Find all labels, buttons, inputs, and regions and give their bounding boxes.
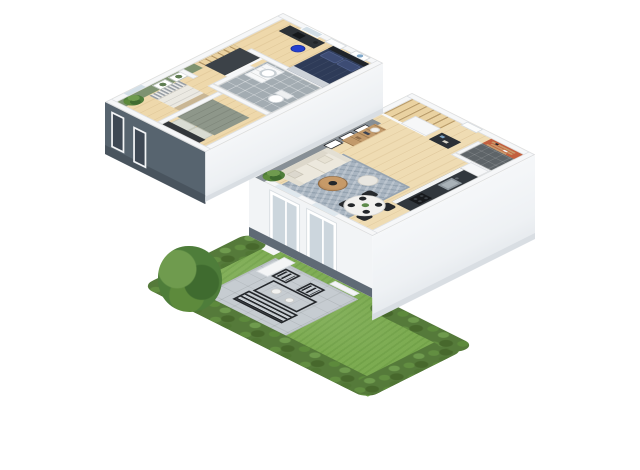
laptop [292, 32, 306, 39]
upper-facade-window-2 [133, 126, 146, 169]
tableware-cup [282, 297, 296, 304]
chair-slats [301, 285, 320, 295]
upper-facade-window-1 [111, 111, 124, 154]
place-setting [346, 203, 357, 208]
cushion-seam [306, 164, 325, 174]
place-setting [361, 209, 372, 214]
place-setting [357, 196, 368, 201]
chair-slats [276, 271, 295, 281]
floor-plan-scene [0, 0, 640, 470]
table-lamp [368, 126, 382, 133]
tableware-plate [268, 287, 284, 295]
window-mullion [285, 201, 287, 247]
burner [417, 200, 422, 203]
place-setting [373, 202, 384, 207]
console-shelf [429, 133, 462, 149]
burner [423, 197, 428, 200]
deco-box [355, 136, 362, 140]
console-deco-2 [442, 140, 449, 144]
desk-lamp [312, 41, 319, 45]
garden-tree [158, 246, 222, 312]
console-deco-1 [439, 135, 445, 138]
centerpiece [360, 203, 371, 208]
coffee-table-tray [327, 180, 339, 186]
window-mullion [322, 219, 324, 265]
blue-stool [287, 43, 308, 54]
books [363, 131, 371, 135]
